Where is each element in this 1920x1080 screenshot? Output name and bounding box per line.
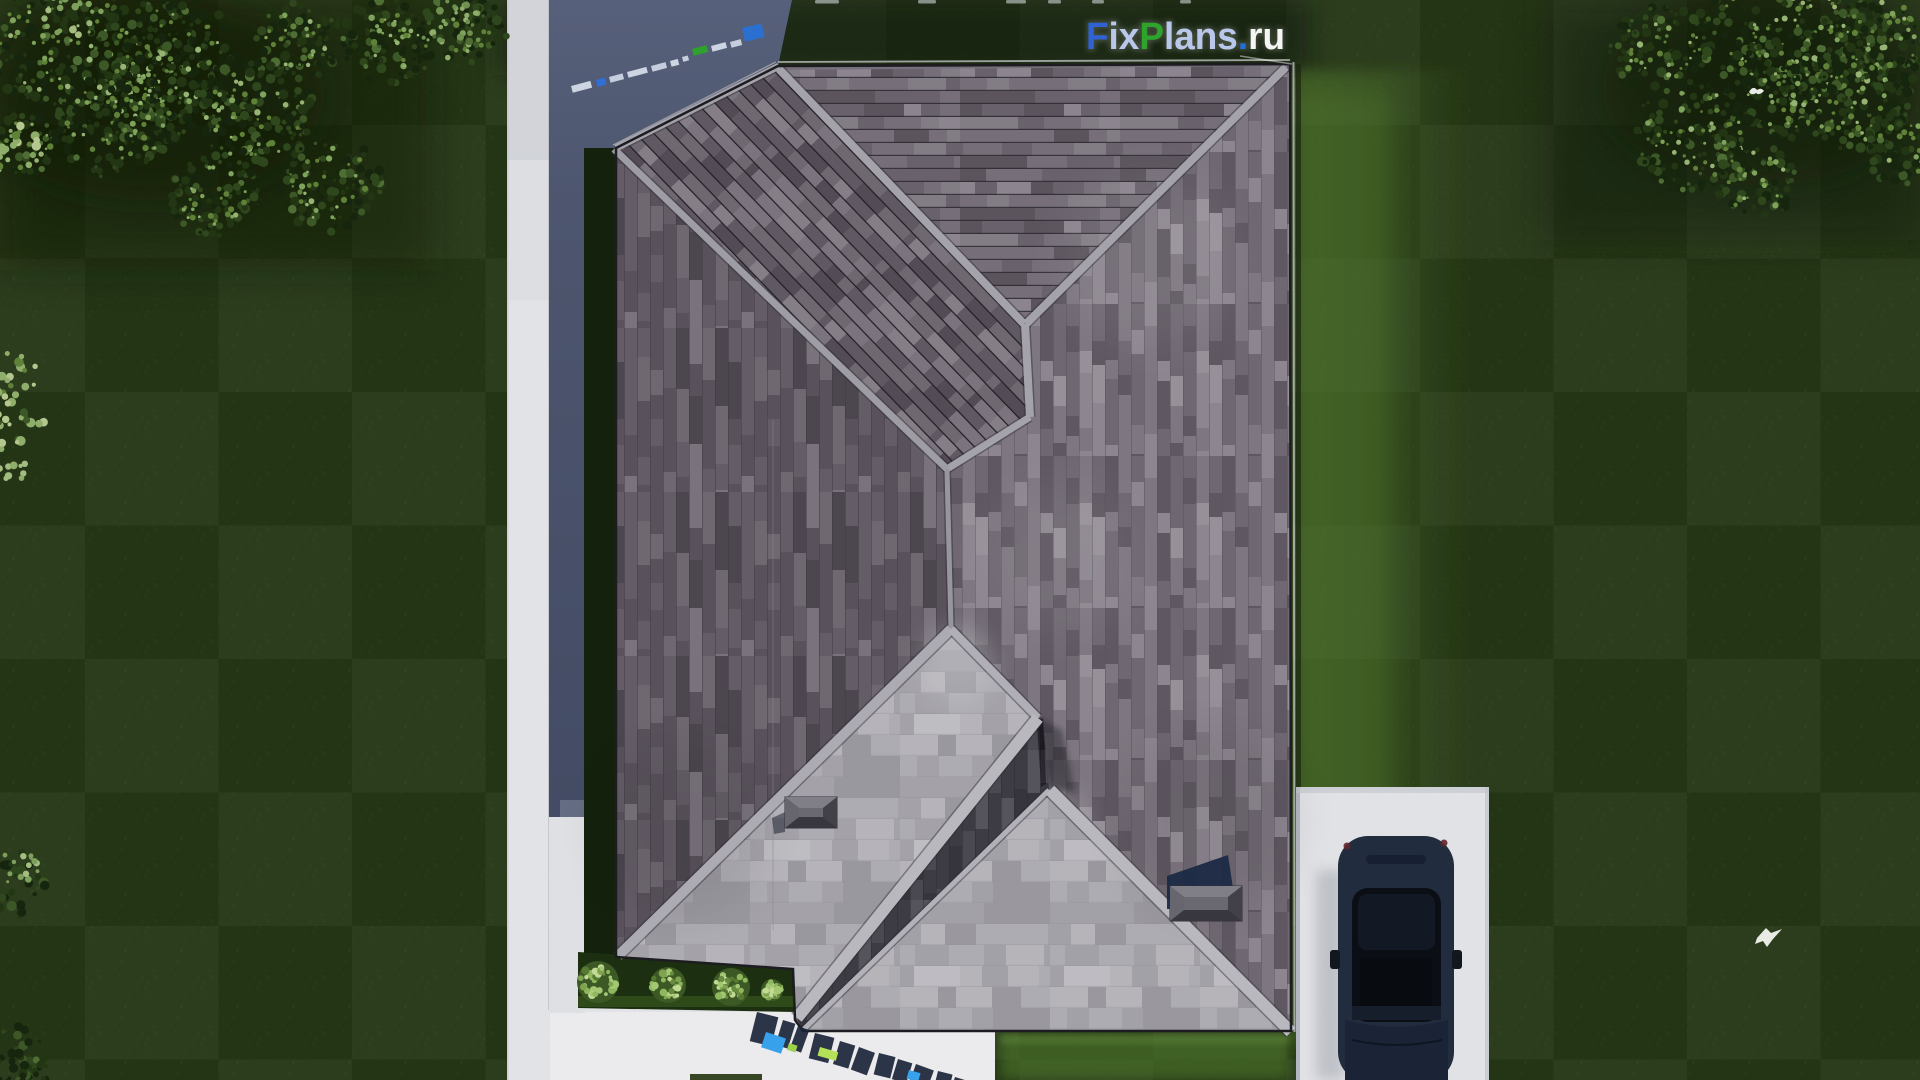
svg-text:FixPlans.ru: FixPlans.ru bbox=[1086, 16, 1285, 58]
